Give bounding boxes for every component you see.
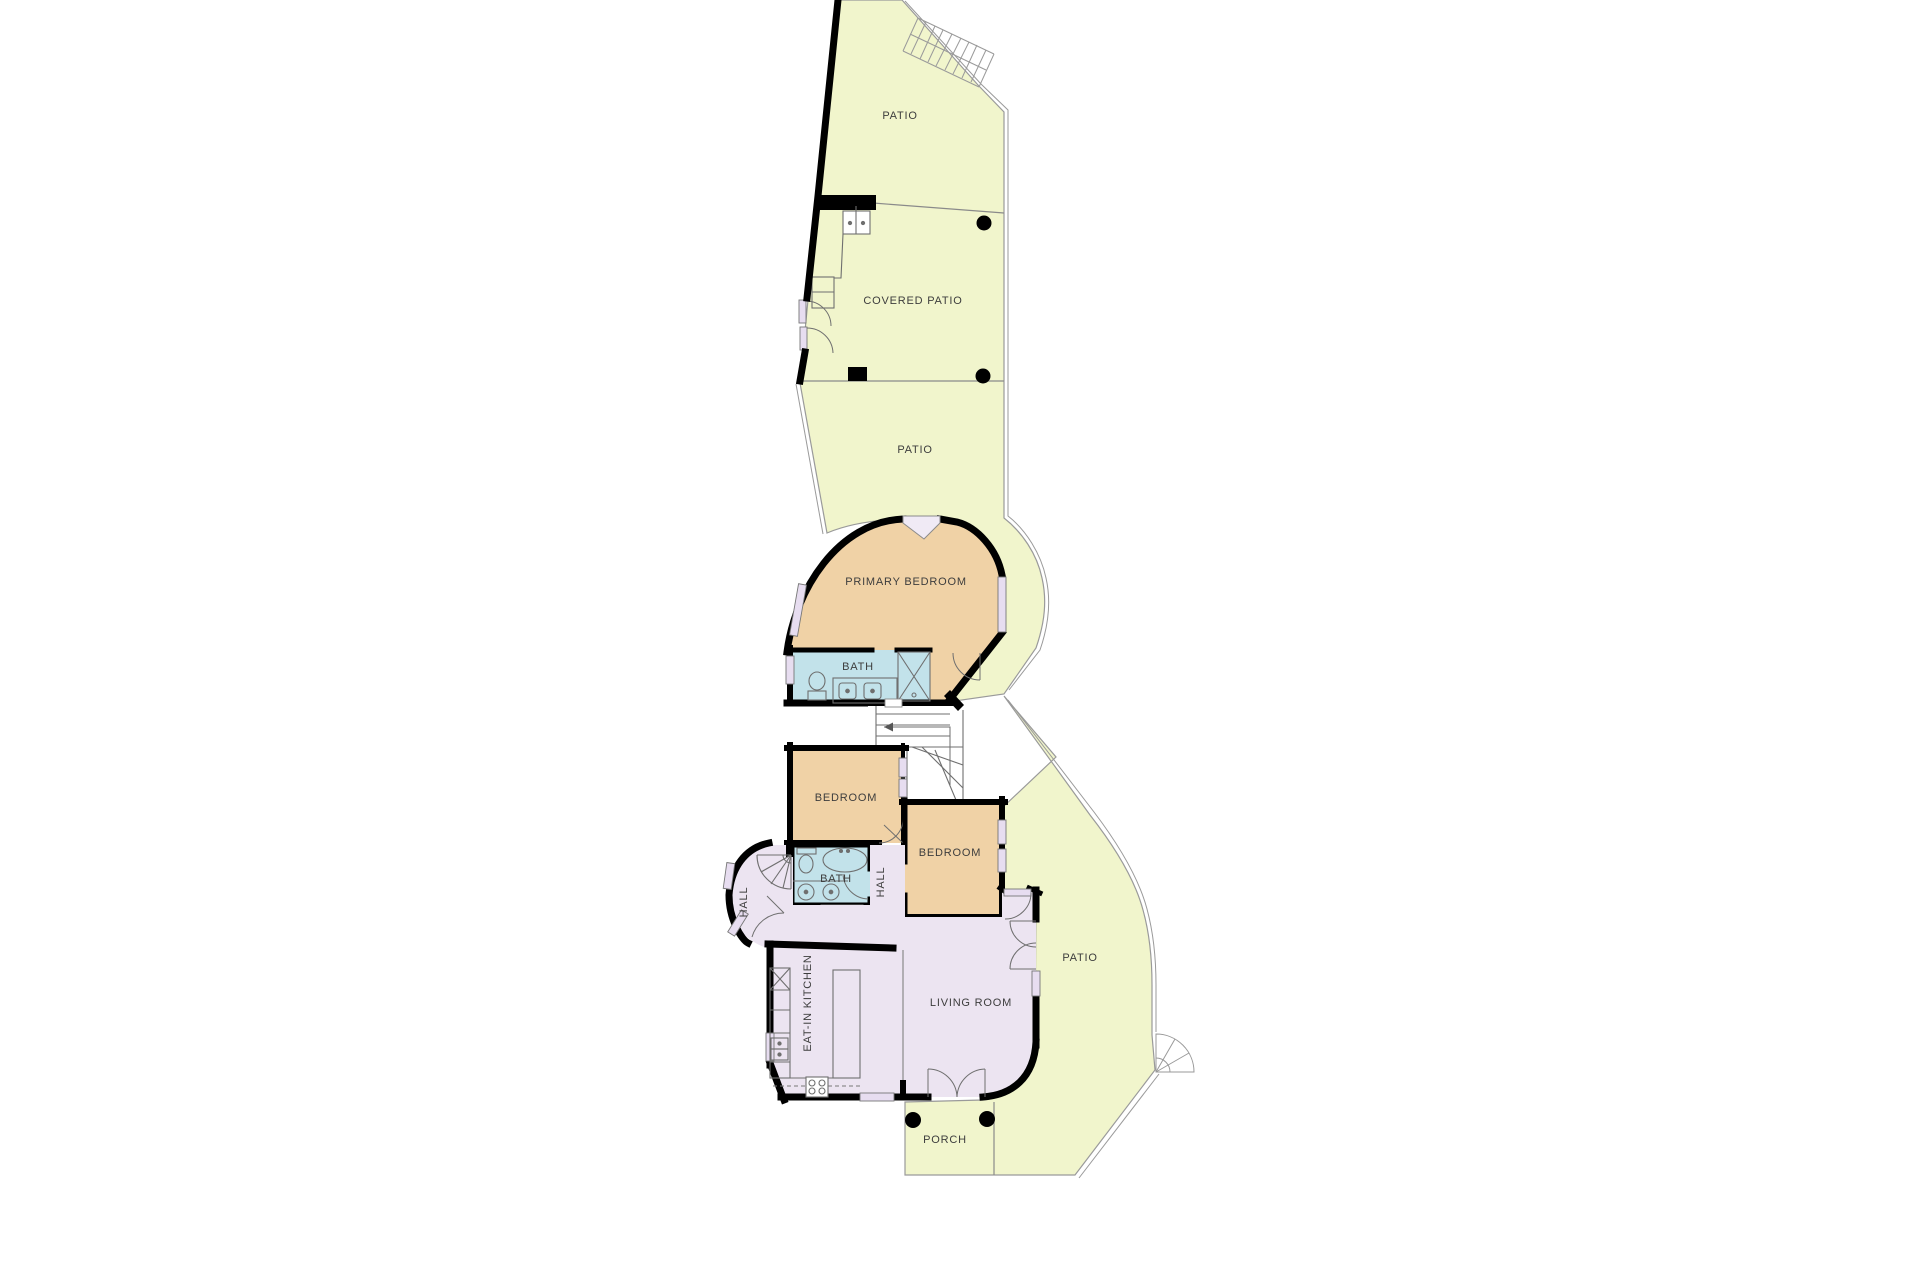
bedroom-left-window — [899, 779, 907, 797]
stove — [806, 1077, 828, 1097]
wall-stub — [815, 195, 876, 210]
patio-post-round — [977, 216, 992, 231]
primary-suite — [786, 516, 1006, 703]
living-window — [1032, 971, 1040, 996]
bedroom-left-window — [899, 758, 907, 777]
label-patio-top: PATIO — [882, 110, 917, 122]
porch-post — [979, 1111, 995, 1127]
label-hall-corridor: HALL — [875, 867, 887, 898]
patio-post-square — [848, 367, 867, 381]
bedroom-right-window — [998, 849, 1006, 872]
label-patio-right: PATIO — [1062, 952, 1097, 964]
primary-bath-window — [786, 656, 794, 684]
bedroom-right — [902, 799, 1006, 935]
label-porch: PORCH — [923, 1134, 967, 1146]
label-patio-mid: PATIO — [897, 444, 932, 456]
living-patio-door — [1004, 889, 1031, 896]
label-covered-patio: COVERED PATIO — [863, 295, 962, 307]
bath-stair-opening — [885, 699, 902, 707]
floor-plan-page: PATIO COVERED PATIO PATIO PRIMARY BEDROO… — [0, 0, 1920, 1280]
label-primary-bedroom: PRIMARY BEDROOM — [845, 576, 967, 588]
patio-post-round — [976, 369, 991, 384]
kitchen-top-wall — [768, 944, 893, 948]
porch-post — [905, 1112, 921, 1128]
label-living-room: LIVING ROOM — [930, 997, 1012, 1009]
label-hall-entry: HALL — [738, 887, 750, 918]
label-bath-hall: BATH — [820, 873, 852, 885]
exterior-fan-steps — [1156, 1034, 1194, 1072]
label-bedroom-right: BEDROOM — [919, 847, 981, 859]
primary-bedroom-window — [998, 577, 1006, 632]
label-kitchen: EAT-IN KITCHEN — [802, 954, 814, 1051]
bedroom-right-window — [998, 820, 1006, 844]
wall-stub — [900, 1080, 906, 1097]
label-bath-primary: BATH — [842, 661, 874, 673]
primary-bath-floor — [790, 650, 930, 703]
floor-plan: PATIO COVERED PATIO PATIO PRIMARY BEDROO… — [0, 0, 1920, 1280]
label-bedroom-left: BEDROOM — [815, 792, 877, 804]
bedroom-right-floor — [905, 802, 1002, 917]
kitchen-window — [860, 1093, 894, 1101]
